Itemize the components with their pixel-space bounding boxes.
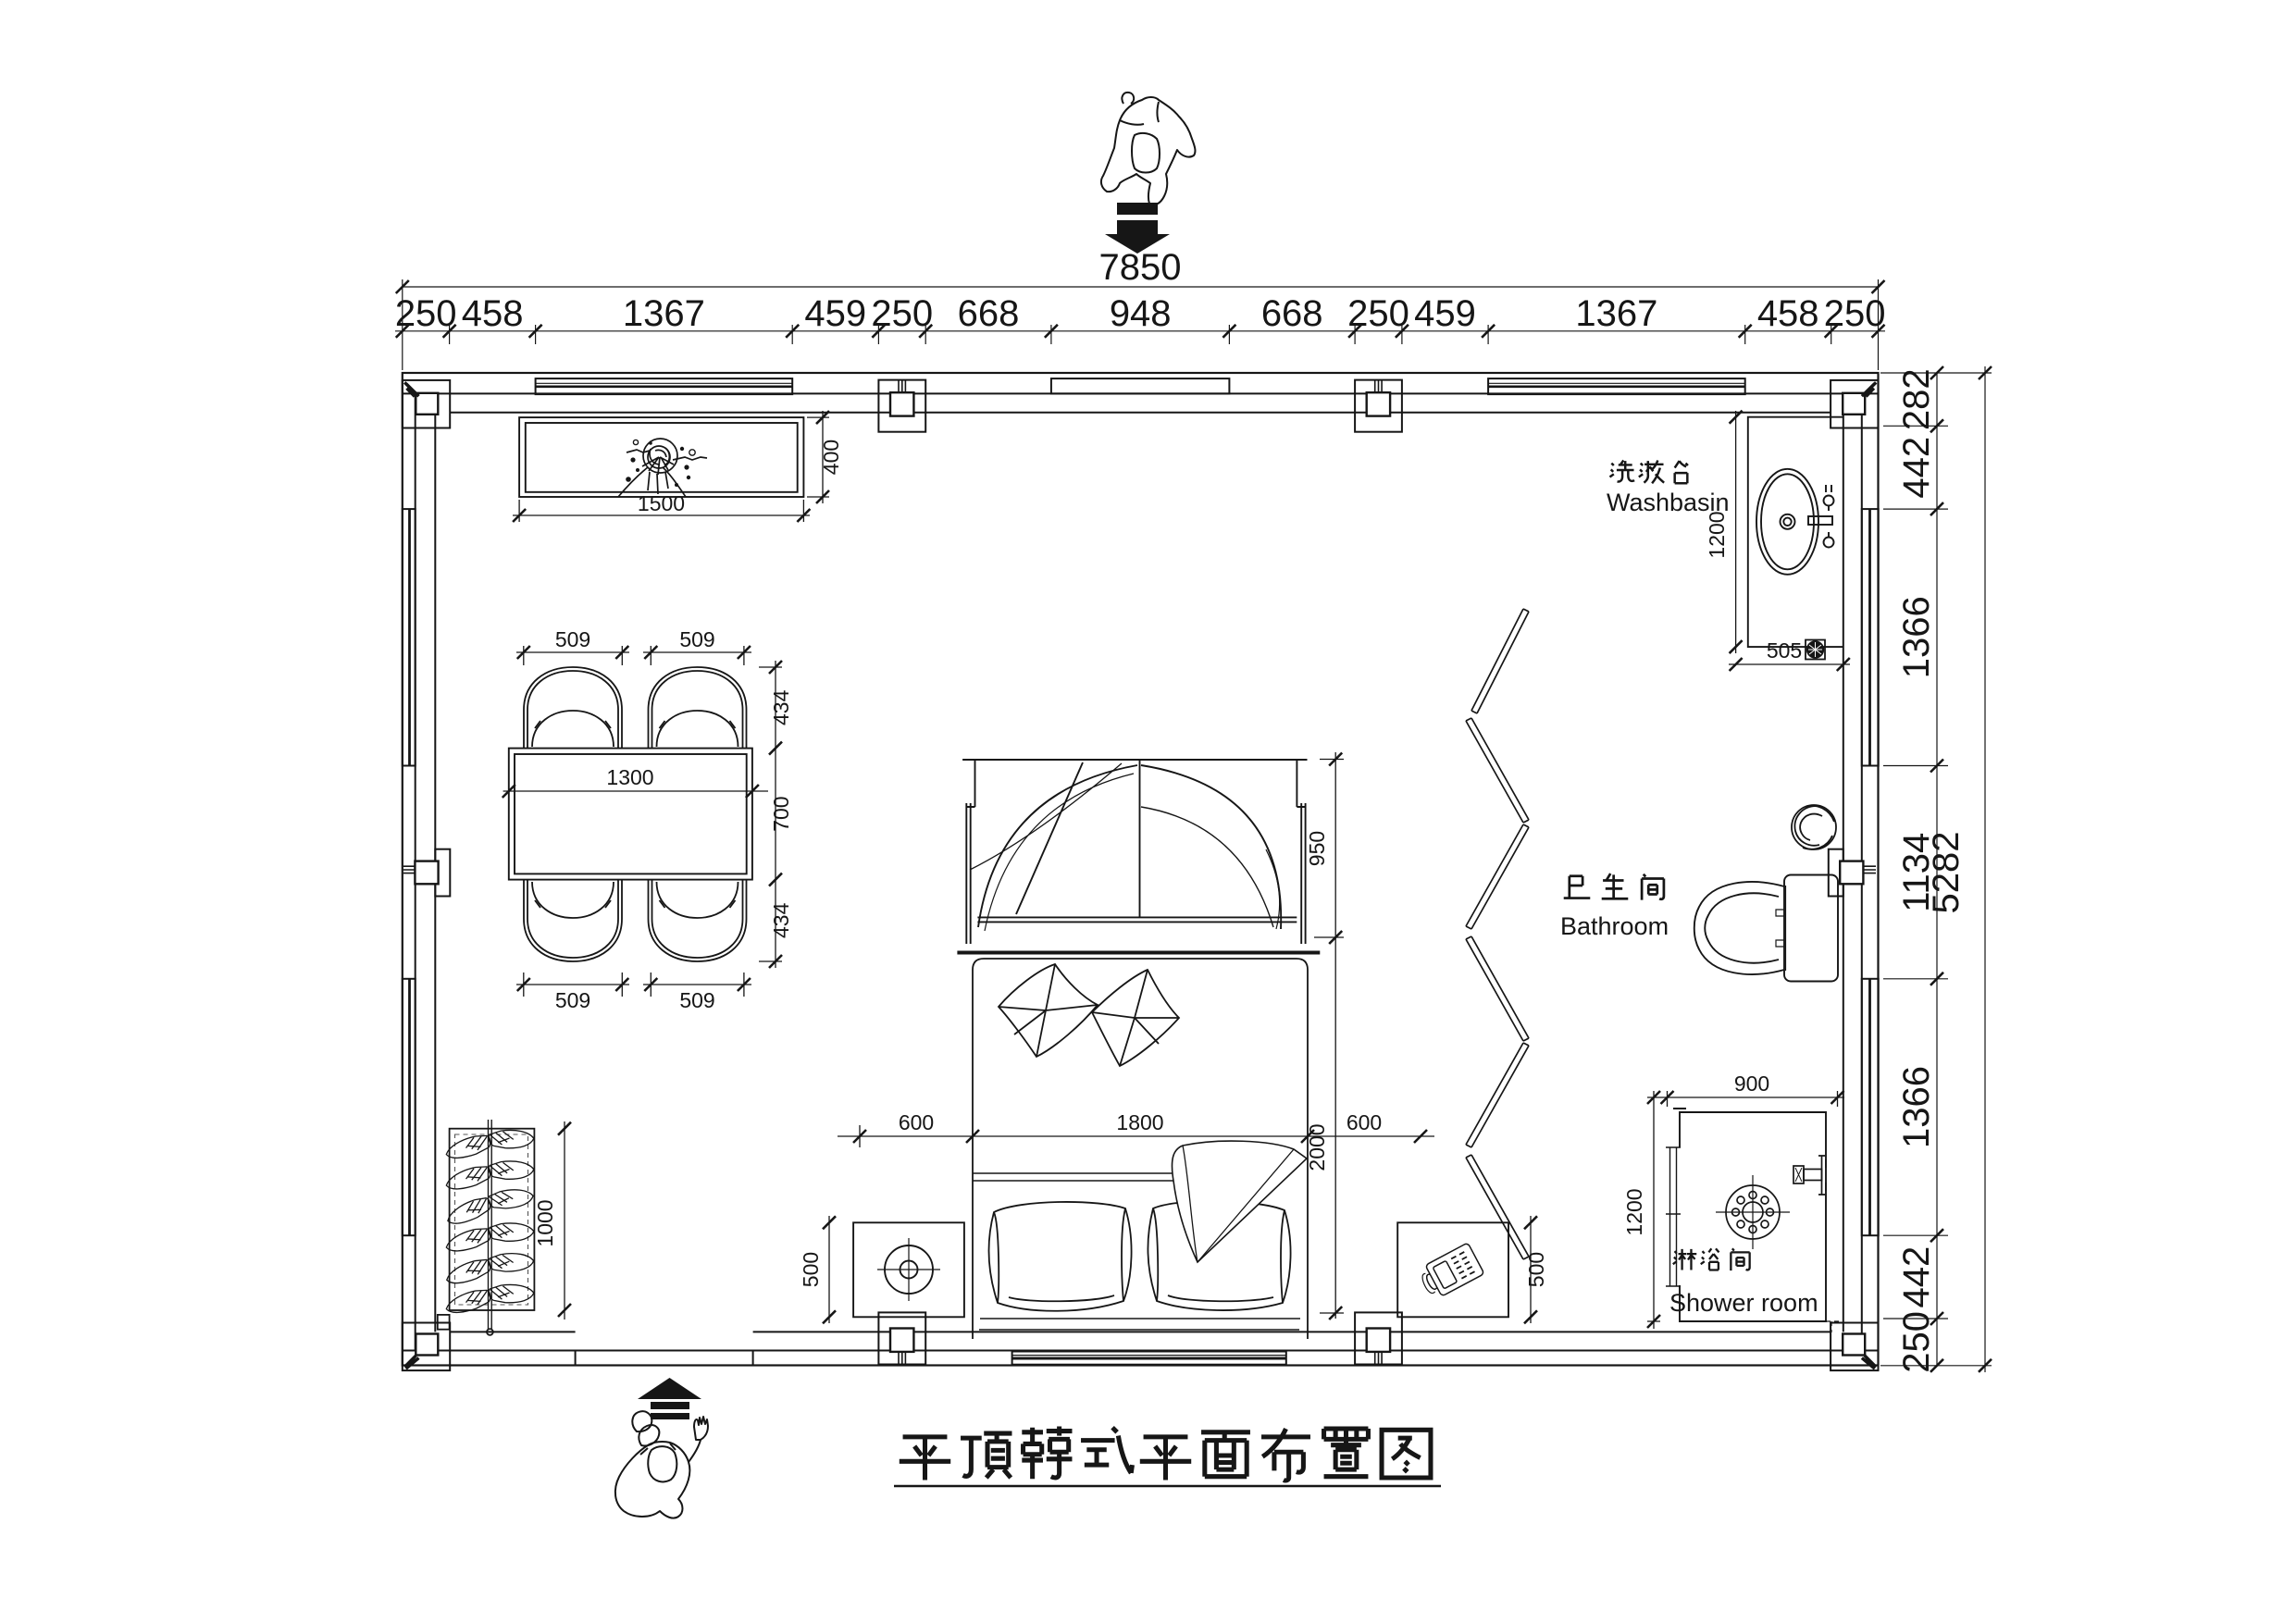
svg-text:250: 250: [1824, 293, 1886, 334]
svg-text:1000: 1000: [533, 1199, 557, 1246]
svg-text:900: 900: [1734, 1072, 1769, 1096]
svg-text:Bathroom: Bathroom: [1560, 912, 1669, 940]
svg-text:1367: 1367: [623, 293, 705, 334]
svg-text:1300: 1300: [606, 765, 653, 789]
svg-text:250: 250: [1347, 293, 1409, 334]
svg-text:459: 459: [1414, 293, 1476, 334]
svg-text:1200: 1200: [1705, 511, 1729, 558]
svg-text:250: 250: [395, 293, 457, 334]
svg-text:509: 509: [679, 627, 714, 651]
svg-text:600: 600: [899, 1110, 934, 1134]
svg-text:2000: 2000: [1305, 1123, 1329, 1171]
svg-text:600: 600: [1347, 1110, 1382, 1134]
svg-text:948: 948: [1110, 293, 1172, 334]
svg-text:1366: 1366: [1896, 596, 1937, 678]
svg-text:Washbasin: Washbasin: [1607, 489, 1730, 516]
svg-text:5282: 5282: [1926, 832, 1967, 914]
svg-text:668: 668: [1261, 293, 1323, 334]
svg-text:509: 509: [679, 988, 714, 1012]
svg-text:668: 668: [958, 293, 1020, 334]
svg-text:1800: 1800: [1116, 1110, 1163, 1134]
svg-text:1367: 1367: [1575, 293, 1657, 334]
svg-text:400: 400: [819, 440, 843, 475]
svg-text:509: 509: [555, 627, 590, 651]
svg-text:458: 458: [462, 293, 524, 334]
svg-text:Shower room: Shower room: [1669, 1289, 1818, 1317]
svg-text:282: 282: [1896, 368, 1937, 430]
svg-text:434: 434: [769, 902, 793, 938]
svg-text:1366: 1366: [1896, 1066, 1937, 1148]
svg-text:7850: 7850: [1099, 247, 1182, 288]
svg-text:700: 700: [769, 796, 793, 831]
svg-text:250: 250: [1896, 1311, 1937, 1373]
svg-text:434: 434: [769, 689, 793, 725]
svg-text:1500: 1500: [638, 491, 685, 515]
svg-text:442: 442: [1896, 437, 1937, 499]
svg-text:950: 950: [1305, 831, 1329, 866]
svg-text:250: 250: [871, 293, 933, 334]
svg-text:509: 509: [555, 988, 590, 1012]
svg-text:500: 500: [799, 1252, 823, 1287]
svg-text:442: 442: [1896, 1246, 1937, 1308]
svg-text:459: 459: [804, 293, 866, 334]
svg-text:505: 505: [1767, 638, 1802, 663]
svg-text:1200: 1200: [1622, 1188, 1646, 1235]
svg-text:458: 458: [1757, 293, 1819, 334]
